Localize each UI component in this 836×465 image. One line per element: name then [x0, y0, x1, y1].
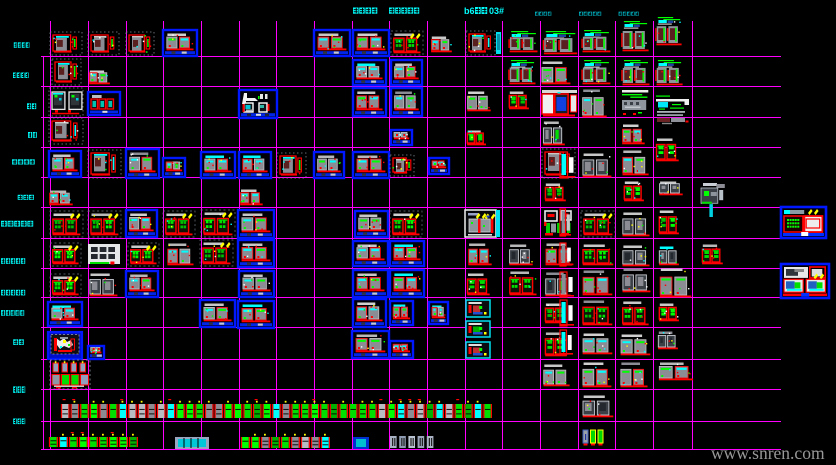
svg-text:www.snren.com: www.snren.com — [711, 443, 825, 463]
svg-text:03#: 03# — [489, 6, 504, 16]
svg-text:b6: b6 — [464, 6, 475, 16]
